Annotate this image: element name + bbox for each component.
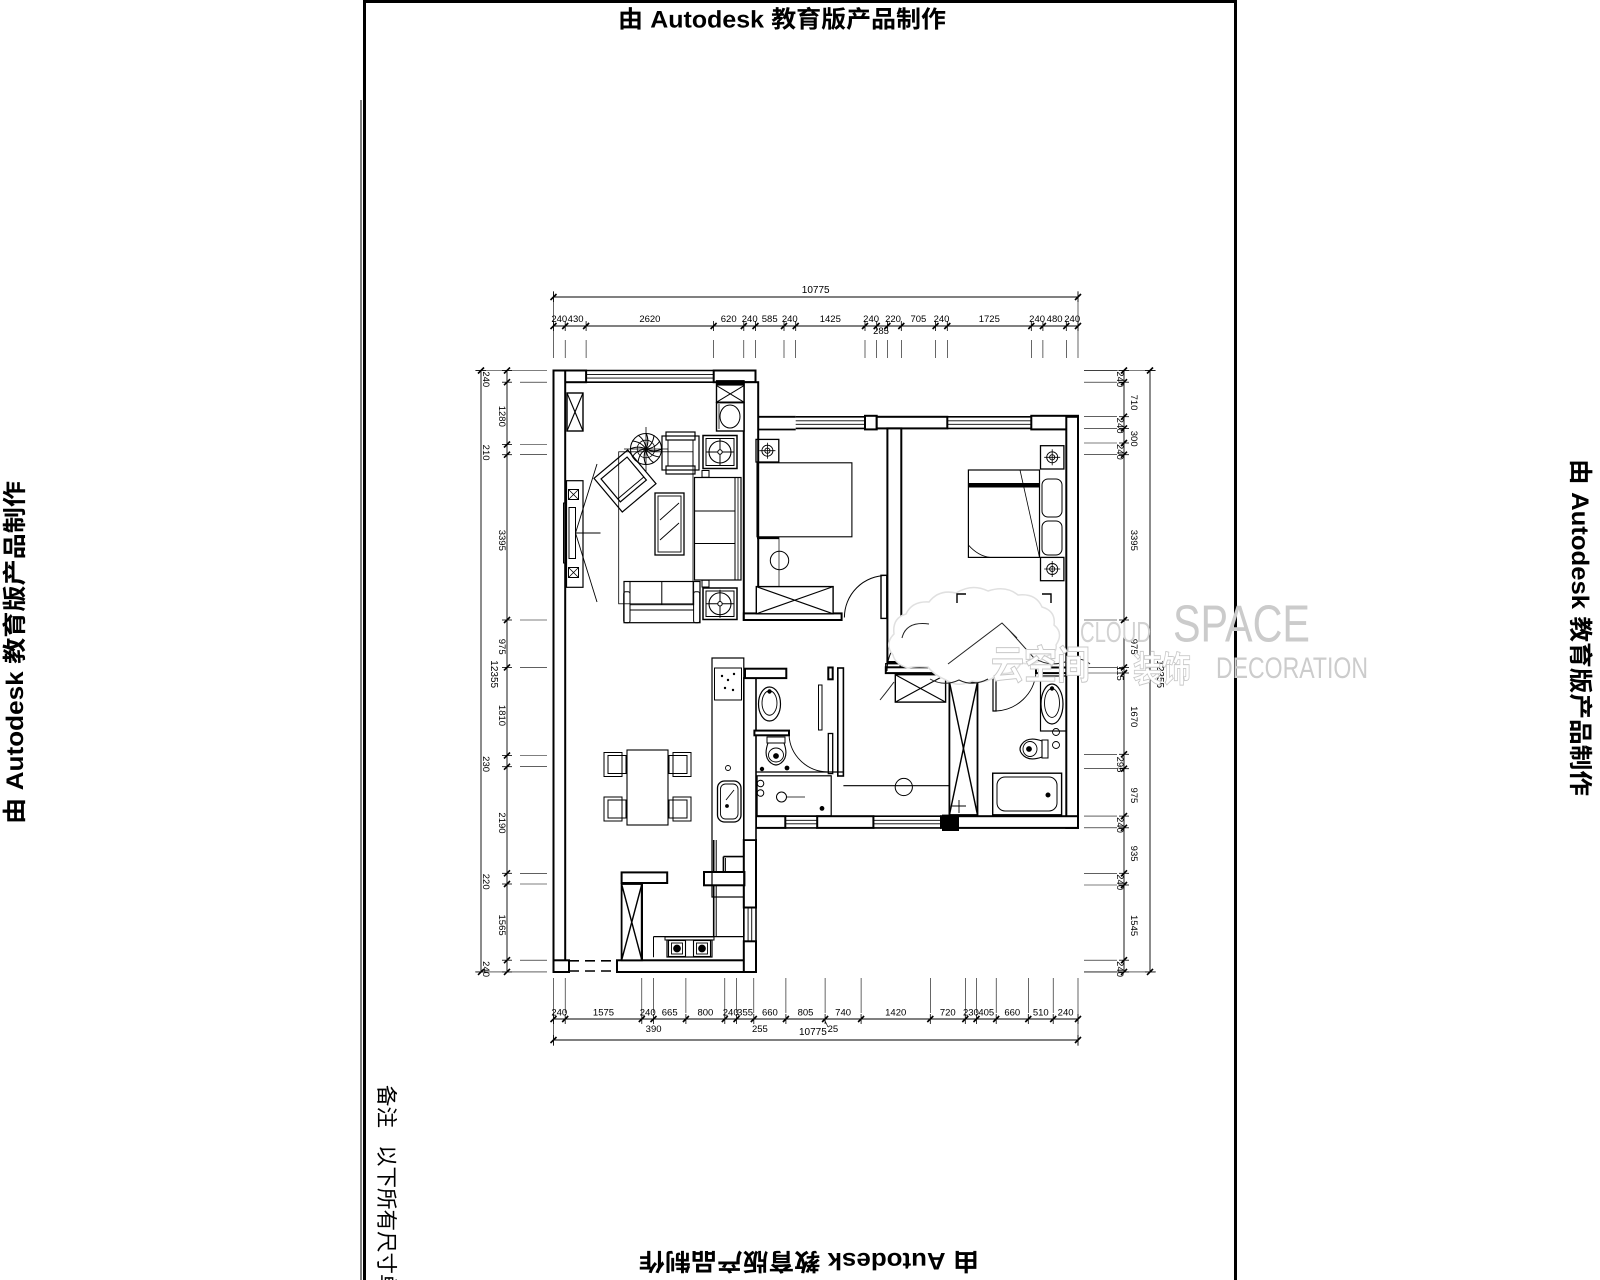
svg-text:240: 240: [1114, 371, 1125, 387]
svg-text:240: 240: [1114, 961, 1125, 977]
svg-text:1810: 1810: [496, 705, 507, 726]
svg-text:720: 720: [940, 1008, 956, 1019]
svg-text:430: 430: [568, 314, 584, 325]
svg-text:240: 240: [1058, 1008, 1074, 1019]
svg-text:240: 240: [1114, 874, 1125, 890]
svg-text:240: 240: [1114, 444, 1125, 460]
svg-text:240: 240: [1114, 418, 1125, 434]
svg-text:1670: 1670: [1128, 706, 1139, 727]
svg-text:300: 300: [1128, 431, 1139, 447]
svg-text:240: 240: [1029, 314, 1045, 325]
svg-text:240: 240: [782, 314, 798, 325]
svg-text:285: 285: [873, 326, 889, 337]
svg-text:210: 210: [480, 445, 491, 461]
svg-text:240: 240: [480, 961, 491, 977]
svg-text:480: 480: [1047, 314, 1063, 325]
svg-text:805: 805: [798, 1008, 814, 1019]
svg-text:SPACE: SPACE: [1173, 595, 1310, 653]
svg-text:1425: 1425: [820, 314, 841, 325]
svg-text:1725: 1725: [979, 314, 1000, 325]
svg-text:230: 230: [480, 756, 491, 772]
svg-text:665: 665: [662, 1008, 678, 1019]
svg-text:2190: 2190: [496, 812, 507, 833]
svg-text:3395: 3395: [496, 530, 507, 551]
svg-text:CLOUD: CLOUD: [1080, 617, 1151, 649]
svg-text:240: 240: [863, 314, 879, 325]
svg-text:975: 975: [496, 639, 507, 655]
svg-text:3395: 3395: [1128, 530, 1139, 551]
svg-text:DECORATION: DECORATION: [1216, 652, 1368, 685]
svg-text:2620: 2620: [639, 314, 660, 325]
svg-text:25: 25: [828, 1024, 839, 1035]
svg-text:220: 220: [480, 874, 491, 890]
svg-text:240: 240: [480, 371, 491, 387]
svg-text:1545: 1545: [1128, 915, 1139, 936]
svg-text:295: 295: [1114, 757, 1125, 773]
svg-text:660: 660: [1004, 1008, 1020, 1019]
svg-text:10775: 10775: [802, 285, 830, 296]
svg-text:220: 220: [885, 314, 901, 325]
svg-text:240: 240: [934, 314, 950, 325]
svg-text:10775: 10775: [799, 1027, 827, 1038]
svg-text:1420: 1420: [885, 1008, 906, 1019]
svg-text:1280: 1280: [496, 406, 507, 427]
svg-text:935: 935: [1128, 846, 1139, 862]
svg-text:510: 510: [1033, 1008, 1049, 1019]
svg-text:975: 975: [1128, 787, 1139, 803]
svg-text:240: 240: [1114, 817, 1125, 833]
svg-text:800: 800: [697, 1008, 713, 1019]
svg-text:405: 405: [978, 1008, 994, 1019]
svg-text:1565: 1565: [496, 915, 507, 936]
svg-text:705: 705: [910, 314, 926, 325]
svg-text:12355: 12355: [488, 660, 499, 688]
svg-text:740: 740: [835, 1008, 851, 1019]
svg-text:660: 660: [762, 1008, 778, 1019]
svg-text:1575: 1575: [593, 1008, 614, 1019]
svg-text:355: 355: [737, 1008, 753, 1019]
svg-text:585: 585: [762, 314, 778, 325]
svg-text:710: 710: [1128, 395, 1139, 411]
svg-text:255: 255: [752, 1024, 768, 1035]
svg-text:390: 390: [646, 1024, 662, 1035]
svg-text:240: 240: [742, 314, 758, 325]
svg-text:620: 620: [721, 314, 737, 325]
